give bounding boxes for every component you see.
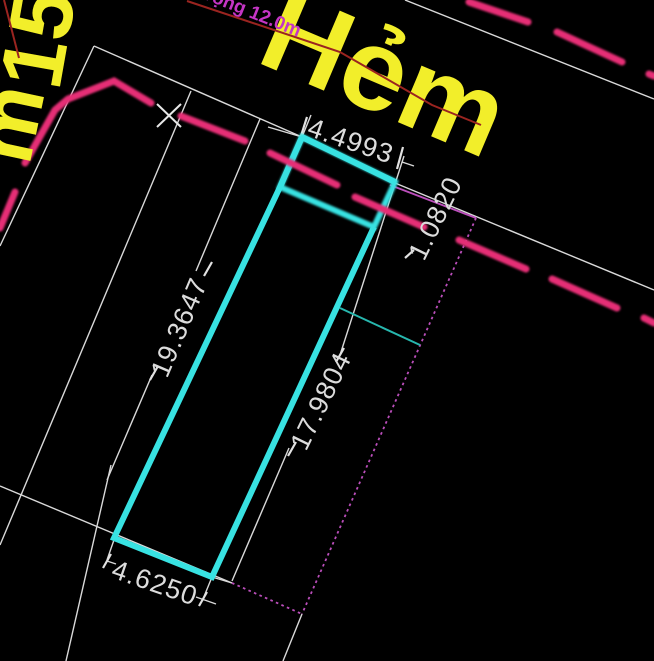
svg-text:4.6250: 4.6250 bbox=[108, 554, 202, 611]
svg-text:15: 15 bbox=[0, 0, 95, 95]
svg-text:19.3647: 19.3647 bbox=[145, 273, 213, 381]
